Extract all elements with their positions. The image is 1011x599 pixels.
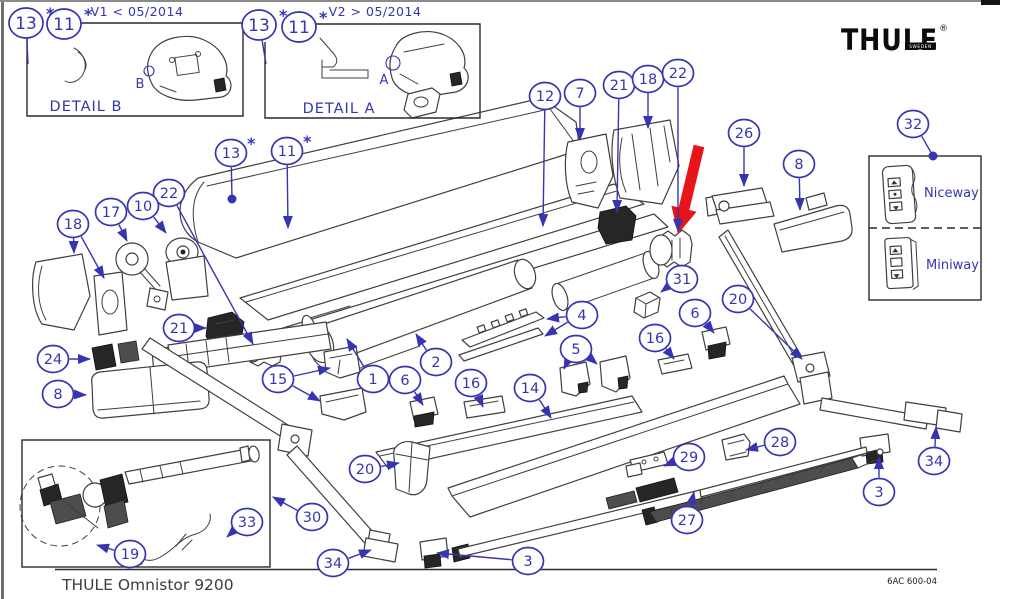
callout-leader <box>416 334 426 350</box>
callout-21: 21 <box>164 315 207 342</box>
callout-number: 3 <box>523 554 532 570</box>
part-clip-28 <box>722 434 750 460</box>
scan-border-left <box>1 0 4 599</box>
callout-24: 24 <box>38 346 91 373</box>
callout-number: 20 <box>356 462 374 478</box>
callout-28: 28 <box>746 429 796 456</box>
callout-number: 22 <box>160 186 178 202</box>
callout-dot <box>929 152 938 161</box>
callout-number: 15 <box>269 372 287 388</box>
callout-8: 8 <box>43 381 87 408</box>
callout-number: 29 <box>680 450 698 466</box>
callout-17: 17 <box>96 199 128 242</box>
callout-number: 14 <box>521 381 539 397</box>
callout-leader <box>935 427 936 447</box>
detail-b-ref-letter: B <box>136 77 145 92</box>
detail-b-version: V1 < 05/2014 <box>91 4 184 19</box>
part-shoulder-26 <box>706 188 774 224</box>
part-end-cap-18-right <box>612 120 679 204</box>
callout-18: 18 <box>633 66 664 129</box>
callout-number: 16 <box>462 376 480 392</box>
callout-34: 34 <box>919 427 950 475</box>
callout-asterisk: * <box>319 8 328 27</box>
callout-number: 7 <box>575 86 584 102</box>
callout-32: 32 <box>898 111 938 161</box>
niceway-remote <box>882 165 918 224</box>
callout-number: 27 <box>678 513 696 529</box>
exploded-diagram: V1 < 05/2014 V2 > 05/2014 DETAIL B DETAI… <box>0 0 1011 599</box>
callout-leader <box>154 217 166 233</box>
callout-number: 2 <box>431 355 440 371</box>
callout-6: 6 <box>680 300 715 334</box>
callout-14: 14 <box>515 375 552 419</box>
callout-leader <box>97 545 114 550</box>
callout-number: 21 <box>170 321 188 337</box>
callout-number: 19 <box>121 547 139 563</box>
callout-number: 6 <box>400 373 409 389</box>
callout-asterisk: * <box>303 132 312 151</box>
callout-number: 13 <box>222 146 240 162</box>
callout-asterisk: * <box>247 134 256 153</box>
part-end-cap-left <box>33 254 127 335</box>
detail-a-caption: DETAIL A <box>303 101 376 117</box>
callout-13: 13* <box>242 6 288 64</box>
detail-a-version: V2 > 05/2014 <box>329 4 422 19</box>
callout-30: 30 <box>273 497 328 531</box>
callout-number: 28 <box>771 435 789 451</box>
callout-number: 30 <box>303 510 321 526</box>
logo-registered-icon: ® <box>939 24 948 34</box>
part-small-6-right <box>702 327 730 359</box>
callout-dot <box>228 195 237 204</box>
callout-number: 11 <box>278 144 296 160</box>
part-drum-22 <box>650 230 692 267</box>
callout-number: 26 <box>735 126 753 142</box>
part-foot-cover-20 <box>394 442 430 495</box>
callout-leader <box>273 497 297 510</box>
callout-number: 34 <box>925 454 943 470</box>
callout-number: 5 <box>571 342 580 358</box>
callout-leader <box>589 357 597 364</box>
callout-2: 2 <box>416 334 452 376</box>
callout-19: 19 <box>97 541 146 568</box>
callout-4: 4 <box>545 302 598 337</box>
part-gear-housing <box>166 238 208 300</box>
callout-number: 12 <box>536 89 554 105</box>
callout-leader <box>661 287 668 292</box>
callout-number: 6 <box>690 306 699 322</box>
part-small-16-mid <box>464 396 505 418</box>
miniway-remote <box>885 237 919 291</box>
scan-border-top <box>0 0 992 2</box>
remote-option-niceway: Niceway <box>924 186 979 201</box>
callout-number: 33 <box>238 515 256 531</box>
detail-b-caption: DETAIL B <box>50 99 123 115</box>
callout-number: 8 <box>53 387 62 403</box>
callout-leader <box>119 225 127 241</box>
callout-leader <box>545 322 568 336</box>
callout-number: 24 <box>44 352 62 368</box>
callout-number: 8 <box>794 157 803 173</box>
callout-leader <box>293 386 320 401</box>
callout-number: 31 <box>673 272 691 288</box>
thule-logo: THULE ® SWEDEN <box>841 23 948 57</box>
callout-number: 18 <box>64 217 82 233</box>
part-cube-31 <box>634 292 660 318</box>
callout-13: 13* <box>9 4 55 64</box>
inset-motor-assembly <box>20 445 260 546</box>
callout-26: 26 <box>729 120 760 187</box>
callout-number: 13 <box>248 16 270 36</box>
callout-number: 3 <box>874 485 883 501</box>
callout-33: 33 <box>227 509 263 538</box>
callout-11: 11* <box>282 8 328 42</box>
detail-b-drawing <box>65 36 231 100</box>
callout-number: 32 <box>904 117 922 133</box>
callout-number: 18 <box>639 72 657 88</box>
part-small-6-mid <box>410 397 438 427</box>
callout-leader <box>231 167 232 199</box>
callout-number: 20 <box>729 292 747 308</box>
callout-number: 4 <box>577 308 586 324</box>
callout-leader <box>227 531 234 537</box>
callout-6: 6 <box>390 367 424 406</box>
callout-number: 10 <box>134 199 152 215</box>
footer-doc-number: 6AC 600-04 <box>887 577 937 587</box>
callout-16: 16 <box>640 325 675 360</box>
callout-3: 3 <box>864 457 895 506</box>
parts-diagram-page: V1 < 05/2014 V2 > 05/2014 DETAIL B DETAI… <box>0 0 1011 599</box>
detail-a-ref-letter: A <box>380 73 389 88</box>
footer-model-name: THULE Omnistor 9200 <box>61 576 234 594</box>
callout-number: 16 <box>646 331 664 347</box>
remote-option-miniway: Miniway <box>926 258 979 273</box>
part-led-support-strips <box>459 309 544 361</box>
logo-brand: THULE <box>841 23 938 57</box>
callout-number: 13 <box>15 14 37 34</box>
callout-number: 1 <box>368 372 377 388</box>
scan-blob <box>981 0 1000 5</box>
callout-leader <box>287 165 288 228</box>
callout-number: 21 <box>610 78 628 94</box>
part-sleeve-8-right <box>774 193 852 252</box>
callout-leader <box>799 178 800 210</box>
callout-asterisk: * <box>84 5 93 24</box>
callout-number: 11 <box>288 18 310 38</box>
logo-sub-text: SWEDEN <box>909 44 932 50</box>
callout-leader <box>294 368 330 376</box>
callout-number: 34 <box>324 556 342 572</box>
callout-number: 22 <box>669 66 687 82</box>
callout-34: 34 <box>318 550 372 577</box>
callout-31: 31 <box>661 266 698 293</box>
callout-leader <box>547 317 566 319</box>
part-small-16-right <box>658 354 692 374</box>
callout-number: 17 <box>102 205 120 221</box>
part-drawings <box>20 32 962 568</box>
callout-number: 11 <box>53 15 75 35</box>
